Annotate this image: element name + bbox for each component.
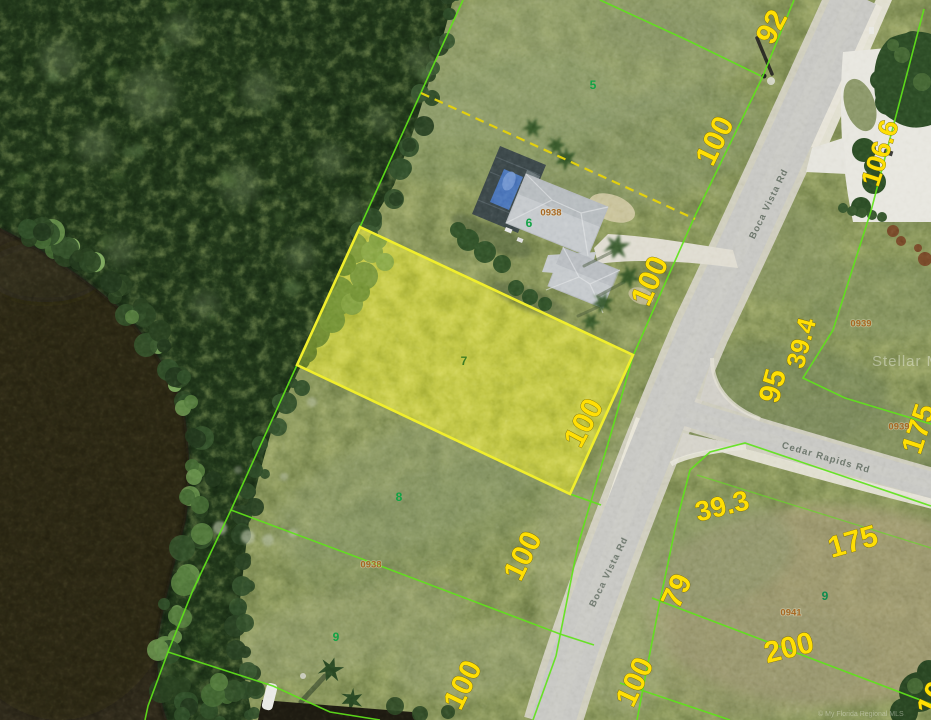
svg-text:7: 7 [461, 354, 468, 368]
svg-text:6: 6 [526, 216, 533, 230]
svg-text:8: 8 [396, 490, 403, 504]
svg-text:0941: 0941 [780, 608, 802, 619]
svg-text:0939: 0939 [888, 422, 909, 433]
svg-text:0938: 0938 [360, 560, 381, 571]
svg-text:9: 9 [333, 630, 340, 644]
svg-text:5: 5 [590, 78, 597, 92]
svg-text:Stellar MLS: Stellar MLS [872, 353, 931, 370]
svg-text:9: 9 [822, 589, 829, 603]
svg-text:0939: 0939 [850, 319, 871, 330]
svg-text:0938: 0938 [540, 208, 561, 219]
svg-text:© My Florida Regional MLS: © My Florida Regional MLS [818, 710, 904, 718]
